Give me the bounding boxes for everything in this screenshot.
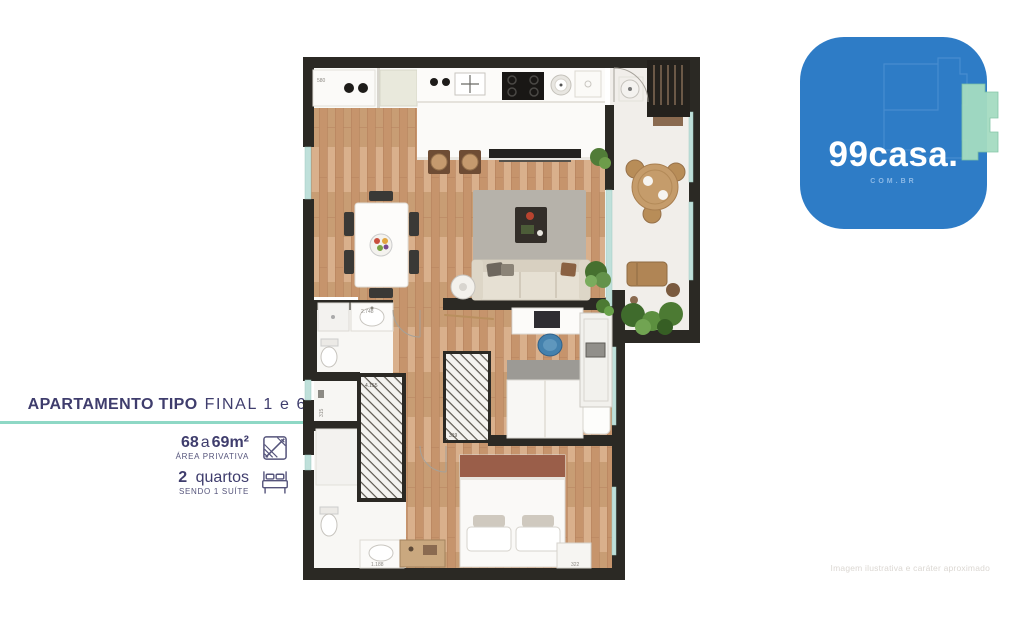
area-hatch-icon (261, 434, 289, 462)
bedroom-window-2 (612, 487, 616, 555)
wardrobe-hall (357, 373, 406, 502)
cooktop (502, 72, 544, 100)
stove-knob (430, 78, 438, 86)
area-spec-row: 68a69m² ÁREA PRIVATIVA (0, 434, 310, 462)
plan-title: APARTAMENTO TIPOFINAL 1 e 6 (0, 396, 307, 414)
dimension-label: 2.748 (361, 309, 374, 315)
dining-area (344, 191, 419, 298)
sofa (472, 260, 590, 300)
sink-basin (369, 545, 393, 561)
window-left-3 (305, 455, 311, 470)
page: APARTAMENTO TIPOFINAL 1 e 6 68a69m² ÁREA… (0, 0, 1024, 639)
plan-title-regular: FINAL 1 e 6 (205, 396, 307, 413)
window-left-2 (305, 380, 311, 400)
logo-domain-text: COM.BR (800, 178, 987, 185)
laundry-area (313, 70, 417, 106)
watermark-text: Imagem ilustrativa e caráter aproximado (831, 563, 990, 573)
bedroom-window-1 (612, 347, 616, 425)
wardrobe-column (580, 313, 612, 407)
dimension-label: 4.155 (365, 383, 378, 389)
shower (316, 429, 358, 485)
area-sublabel: ÁREA PRIVATIVA (176, 452, 249, 461)
accent-divider-line (0, 421, 307, 424)
tv-panel (489, 149, 581, 158)
nightstand-left (400, 540, 445, 567)
spec-block: 68a69m² ÁREA PRIVATIVA 2 quartos SENDO 1… (0, 434, 310, 504)
laptop (534, 311, 560, 328)
dimension-label: 580 (317, 78, 326, 84)
coffee-table (515, 207, 547, 243)
dimension-label: 1.188 (371, 562, 384, 568)
toilet (321, 514, 337, 536)
bedrooms-spec-row: 2 quartos SENDO 1 SUÍTE (0, 469, 310, 497)
bedrooms-sublabel: SENDO 1 SUÍTE (178, 487, 249, 496)
bar-stool (459, 150, 481, 174)
dimension-label: 315 (319, 408, 325, 417)
bedroom-2 (507, 299, 614, 438)
double-bed (460, 455, 565, 567)
single-bed (507, 360, 583, 438)
dimension-label: 319 (449, 433, 458, 439)
balcony-window-2 (689, 202, 693, 280)
grill (647, 60, 690, 126)
dimension-label: 322 (571, 562, 580, 568)
switch-plate (318, 390, 324, 398)
bedrooms-value: 2 quartos (178, 469, 249, 486)
window-left-1 (305, 147, 311, 199)
wardrobe-bedroom2 (443, 351, 491, 443)
hallway (318, 390, 324, 398)
counter-cabinet (575, 71, 601, 97)
toilet-tank (320, 507, 338, 514)
floor-plan: 580 2.748 315 4.155 319 1.188 322 (303, 57, 700, 580)
stove-knob (442, 78, 450, 86)
toilet (321, 347, 337, 367)
toilet-tank (321, 339, 338, 346)
fruit-bowl (370, 234, 392, 256)
balcony-glass-door (606, 190, 612, 306)
floor-lamp (451, 275, 475, 299)
double-bed-icon (261, 469, 289, 497)
bar-stool (428, 150, 450, 174)
plan-title-bold: APARTAMENTO TIPO (28, 396, 198, 413)
balcony-window-1 (689, 112, 693, 182)
cabinet (380, 70, 417, 106)
logo-green-accent-shape (952, 80, 1002, 164)
area-value: 68a69m² (176, 434, 249, 451)
